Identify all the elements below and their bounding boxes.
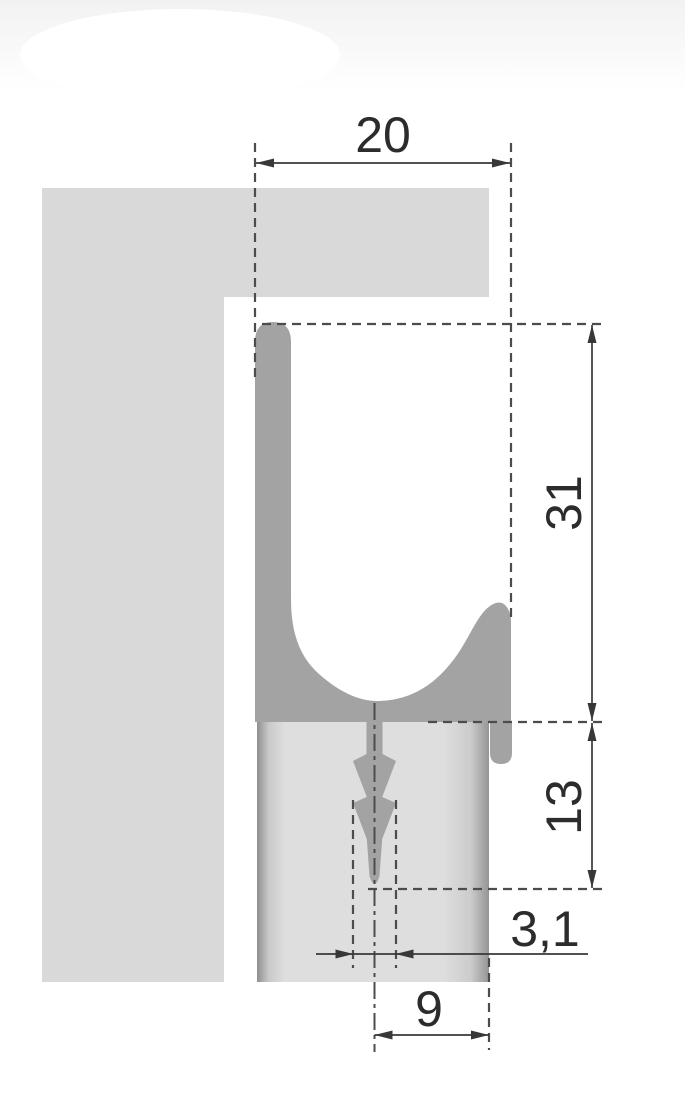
arrowhead-right-icon <box>471 1031 489 1040</box>
arrowhead-up-icon <box>588 325 597 343</box>
dim-label-20: 20 <box>355 107 411 163</box>
arrowhead-left-icon <box>375 1031 393 1040</box>
whited-out-blob <box>20 9 340 101</box>
dim-bottom-offset: 9 <box>375 981 490 1040</box>
dim-top-width: 20 <box>256 107 510 168</box>
dim-label-31: 31 <box>536 475 592 531</box>
technical-drawing-canvas: 20 31 13 3,1 9 <box>0 0 685 1096</box>
dim-label-13: 13 <box>536 779 592 835</box>
arrowhead-down-icon <box>588 870 597 888</box>
arrowhead-up-icon <box>588 723 597 741</box>
dim-upper-height: 31 <box>536 325 597 721</box>
arrowhead-down-icon <box>588 703 597 721</box>
arrowhead-right-icon <box>492 159 510 168</box>
dim-label-9: 9 <box>415 981 443 1037</box>
arrowhead-left-icon <box>256 159 274 168</box>
dim-label-3-1: 3,1 <box>510 901 580 957</box>
dim-lower-height: 13 <box>536 723 597 888</box>
profile-cross-section-drawing: 20 31 13 3,1 9 <box>0 0 685 1096</box>
